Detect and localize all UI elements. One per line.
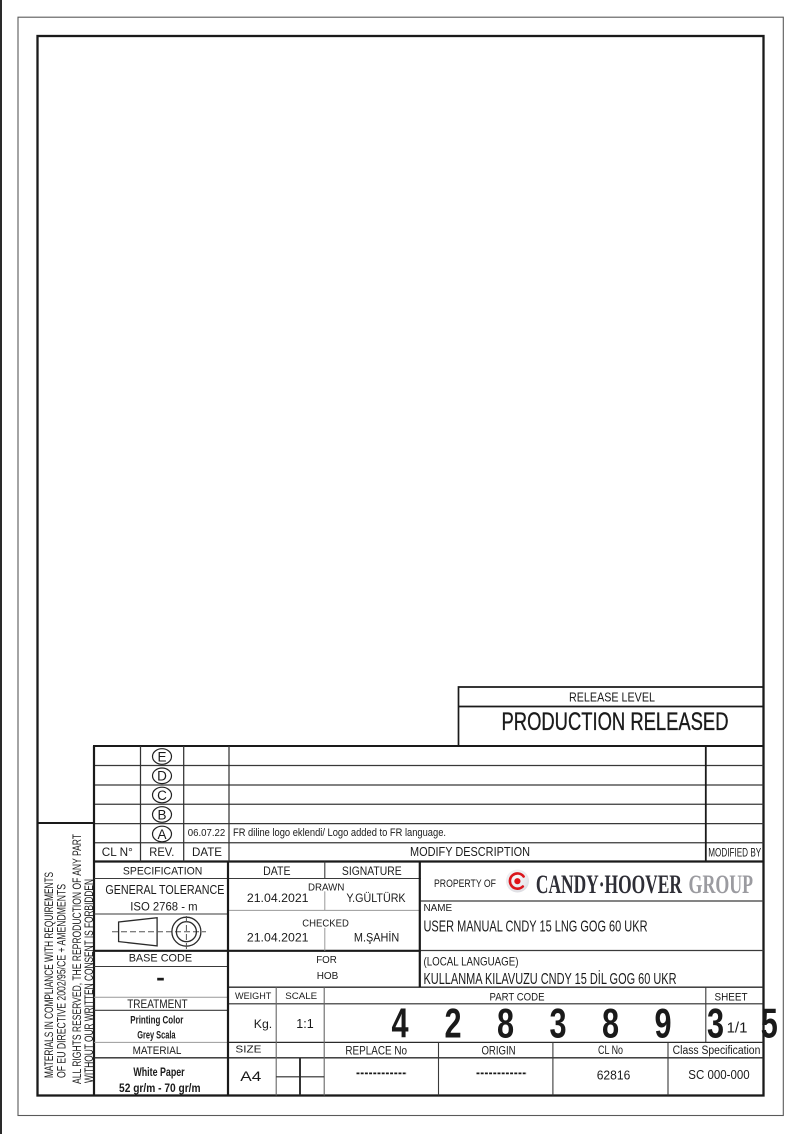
svg-text:Kg.: Kg. <box>254 1017 272 1031</box>
svg-text:52 gr/m - 70 gr/m: 52 gr/m - 70 gr/m <box>119 1081 201 1095</box>
svg-text:ORIGIN: ORIGIN <box>481 1043 515 1057</box>
svg-text:REPLACE No: REPLACE No <box>345 1043 407 1057</box>
svg-text:E: E <box>157 749 166 764</box>
svg-text:SC 000-000: SC 000-000 <box>688 1067 749 1082</box>
svg-text:FR diline logo eklendi/ Logo a: FR diline logo eklendi/ Logo added to FR… <box>233 827 446 839</box>
svg-text:USER MANUAL CNDY 15 LNG GOG 60: USER MANUAL CNDY 15 LNG GOG 60 UKR <box>424 918 648 935</box>
svg-text:TREATMENT: TREATMENT <box>127 998 187 1011</box>
svg-text:Printing Color: Printing Color <box>130 1015 183 1027</box>
svg-text:2: 2 <box>444 1000 461 1047</box>
svg-text:1/1: 1/1 <box>727 1020 748 1037</box>
svg-text:White Paper: White Paper <box>133 1065 185 1079</box>
svg-text:BASE CODE: BASE CODE <box>129 953 192 965</box>
svg-text:WEIGHT: WEIGHT <box>235 991 271 1002</box>
svg-text:M.ŞAHİN: M.ŞAHİN <box>354 932 399 945</box>
svg-text:PROPERTY OF: PROPERTY OF <box>434 878 496 890</box>
svg-text:GENERAL TOLERANCE: GENERAL TOLERANCE <box>105 883 224 897</box>
svg-text:KULLANMA KILAVUZU CNDY 15 DİL: KULLANMA KILAVUZU CNDY 15 DİL GOG 60 UKR <box>424 969 677 988</box>
svg-text:3: 3 <box>707 1000 724 1047</box>
svg-text:MATERIAL: MATERIAL <box>133 1045 182 1057</box>
svg-text:SPECIFICATION: SPECIFICATION <box>123 865 202 877</box>
svg-text:Grey Scala: Grey Scala <box>137 1030 176 1042</box>
svg-text:HOB: HOB <box>317 970 339 982</box>
svg-text:PRODUCTION RELEASED: PRODUCTION RELEASED <box>502 708 729 736</box>
svg-text:06.07.22: 06.07.22 <box>188 827 226 839</box>
svg-text:62816: 62816 <box>597 1068 631 1083</box>
svg-text:GROUP: GROUP <box>689 869 754 899</box>
svg-text:21.04.2021: 21.04.2021 <box>247 933 309 945</box>
svg-text:WITHOUT OUR WRITTEN CONSENT IS: WITHOUT OUR WRITTEN CONSENT IS FORBIDDEN <box>82 879 96 1083</box>
svg-text:5: 5 <box>761 1000 778 1047</box>
svg-text:8: 8 <box>602 1000 619 1047</box>
svg-text:CL N°: CL N° <box>102 845 133 859</box>
svg-text:4: 4 <box>391 1000 409 1047</box>
svg-text:DATE: DATE <box>192 845 222 859</box>
svg-text:C: C <box>157 788 167 803</box>
svg-text:1:1: 1:1 <box>296 1017 313 1031</box>
svg-text:Y.GÜLTÜRK: Y.GÜLTÜRK <box>346 893 406 905</box>
svg-text:Class Specification: Class Specification <box>673 1045 761 1057</box>
svg-text:9: 9 <box>654 1000 671 1047</box>
svg-text:FOR: FOR <box>316 955 337 966</box>
svg-text:CANDY·HOOVER: CANDY·HOOVER <box>536 869 683 899</box>
svg-text:21.04.2021: 21.04.2021 <box>247 893 309 905</box>
svg-text:ISO 2768 - m: ISO 2768 - m <box>130 900 197 914</box>
svg-text:RELEASE LEVEL: RELEASE LEVEL <box>569 691 655 705</box>
svg-text:CHECKED: CHECKED <box>302 918 349 930</box>
svg-text:SIGNATURE: SIGNATURE <box>342 864 402 878</box>
svg-text:D: D <box>157 769 167 784</box>
svg-text:(LOCAL LANGUAGE): (LOCAL LANGUAGE) <box>424 955 519 969</box>
svg-text:B: B <box>157 807 166 822</box>
svg-text:SCALE: SCALE <box>285 991 317 1002</box>
svg-text:NAME: NAME <box>424 902 453 914</box>
svg-text:A4: A4 <box>240 1068 261 1084</box>
svg-text:CL No: CL No <box>598 1043 623 1057</box>
svg-text:MODIFIED BY: MODIFIED BY <box>708 845 761 859</box>
svg-text:8: 8 <box>497 1000 514 1047</box>
svg-text:SIZE: SIZE <box>235 1043 261 1055</box>
svg-text:OF EU DIRECTIVE 2002/95/CE + A: OF EU DIRECTIVE 2002/95/CE + AMENDMENTS <box>54 884 68 1078</box>
svg-text:DRAWN: DRAWN <box>308 882 344 894</box>
svg-text:MODIFY DESCRIPTION: MODIFY DESCRIPTION <box>410 845 530 859</box>
svg-text:REV.: REV. <box>149 845 174 859</box>
svg-text:A: A <box>157 827 166 842</box>
svg-text:DATE: DATE <box>263 864 290 878</box>
svg-text:3: 3 <box>549 1000 566 1047</box>
